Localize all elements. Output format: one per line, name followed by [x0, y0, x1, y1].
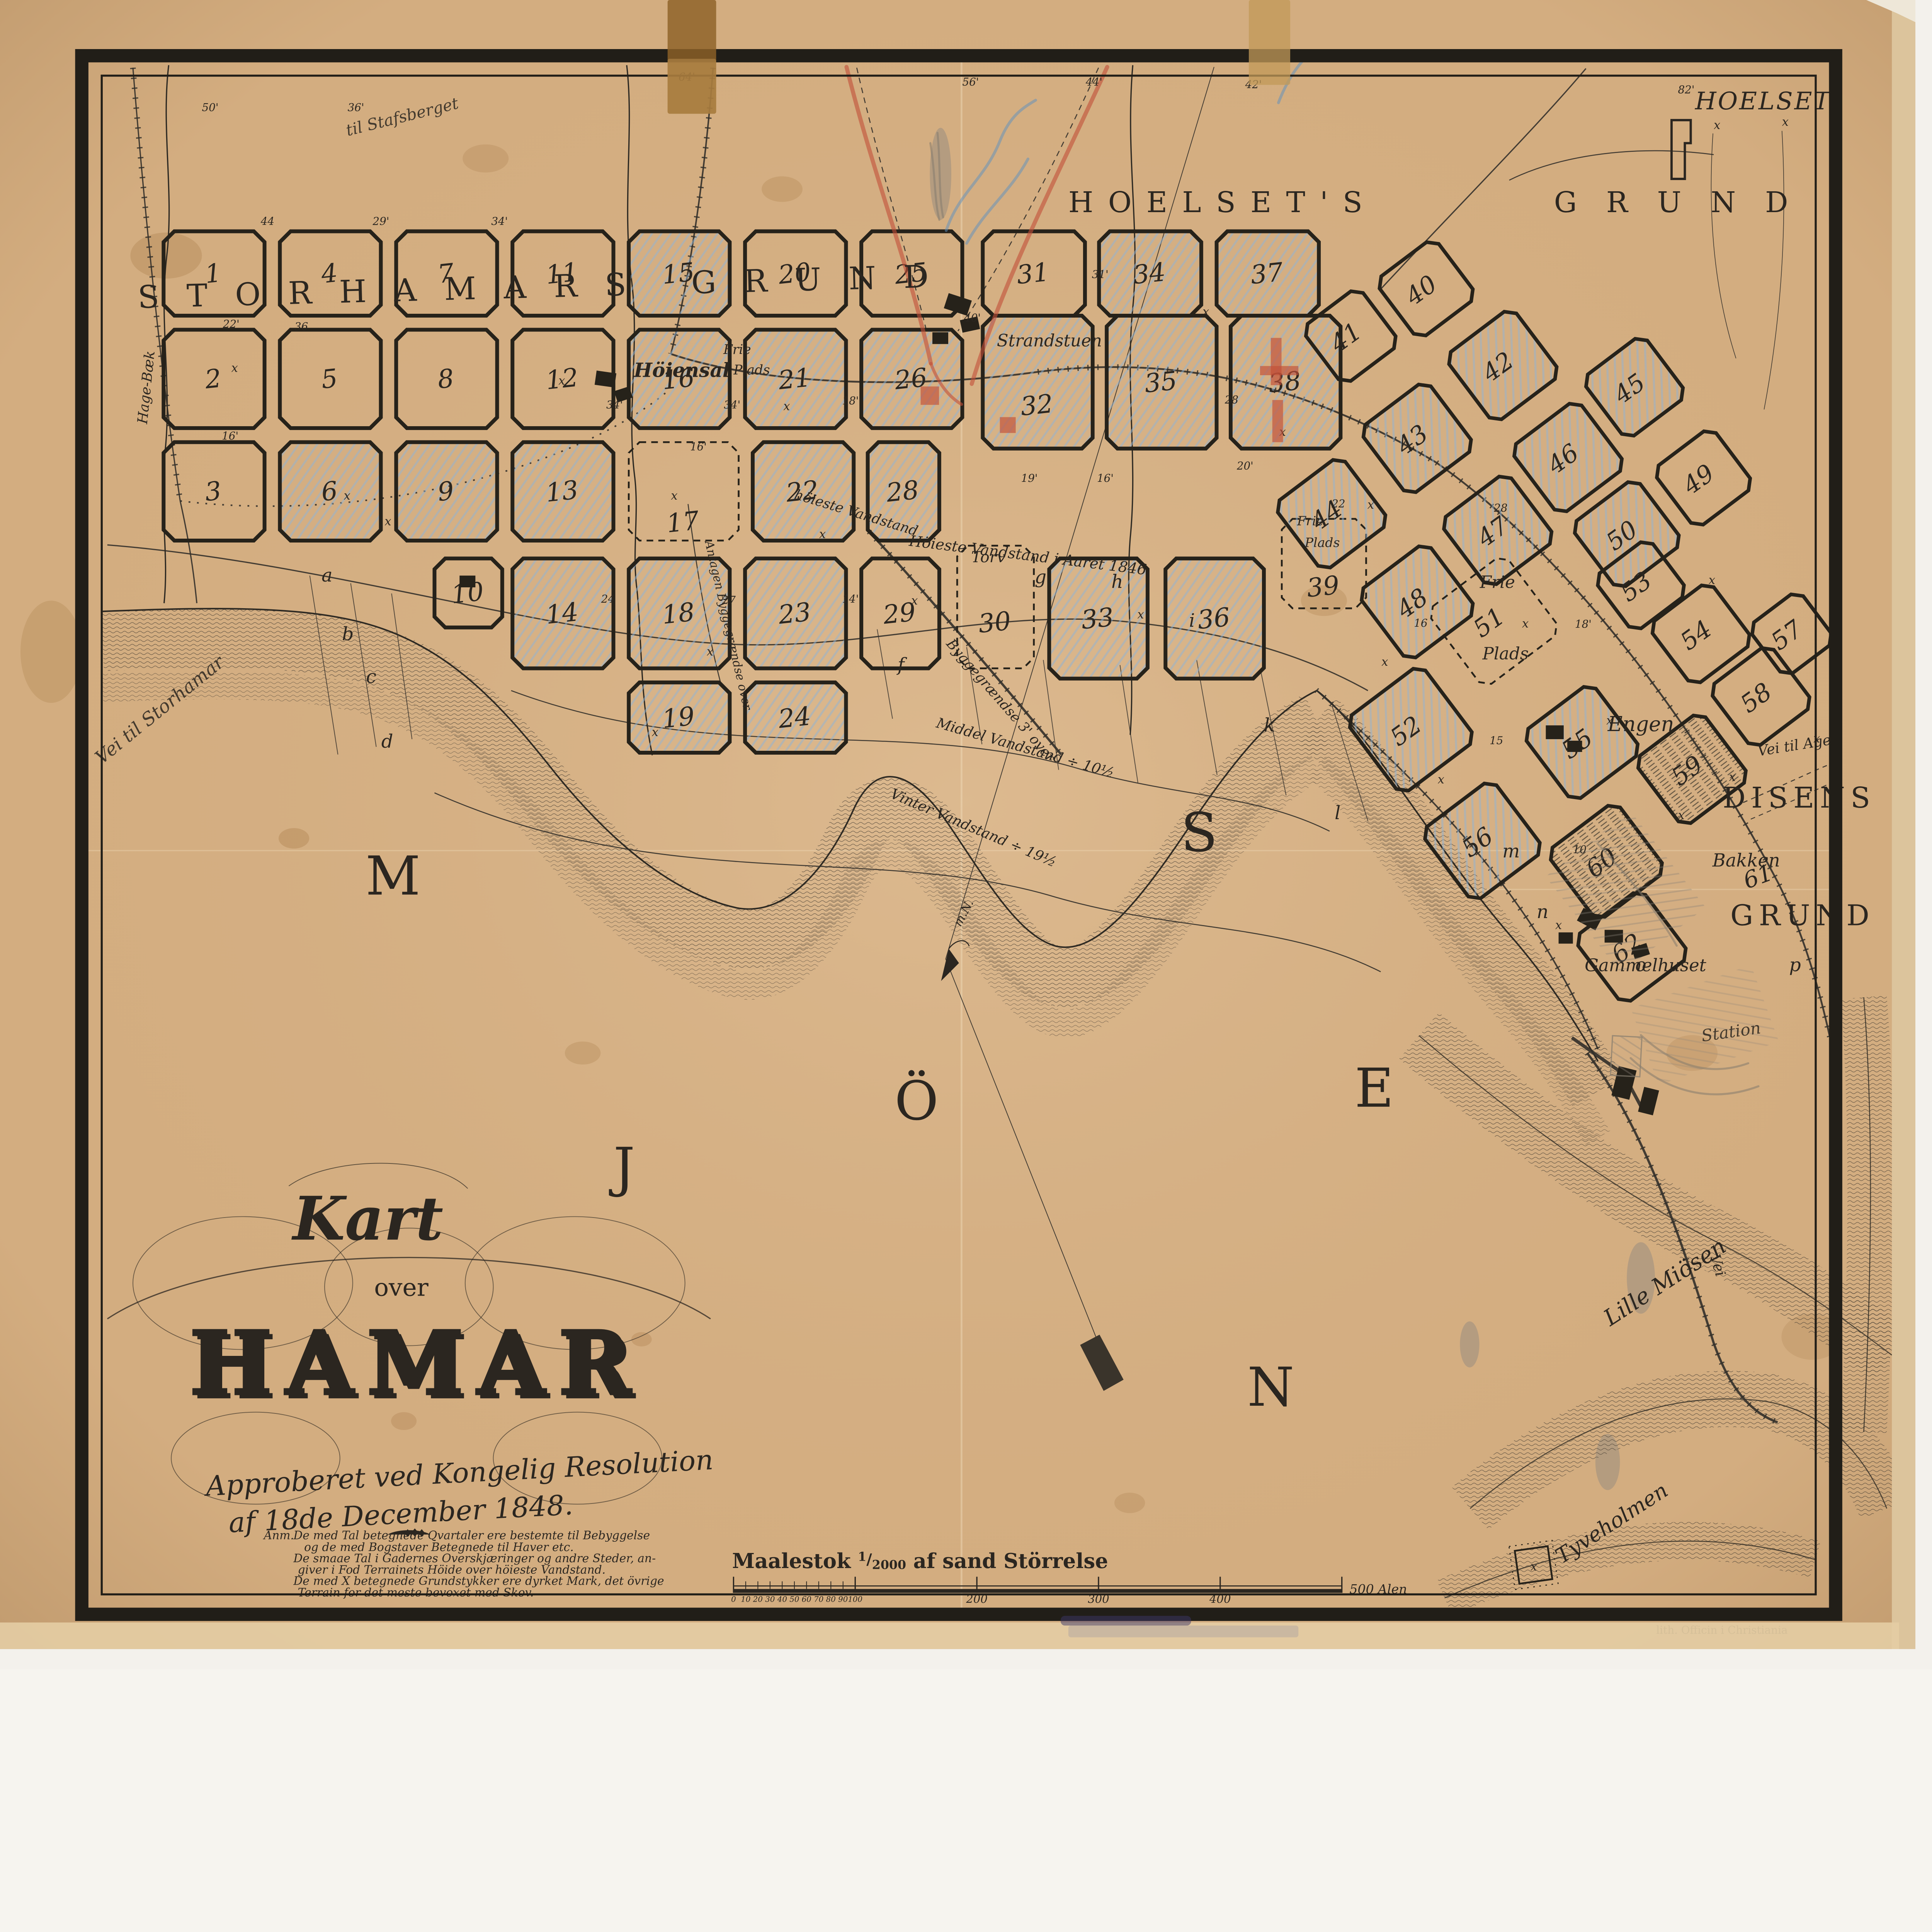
street-width-number: 27 — [722, 594, 736, 606]
place-label: Frie — [1480, 572, 1515, 592]
garden-plot-letter: i — [1189, 610, 1195, 631]
cultivated-field-x-icon: x — [1138, 608, 1144, 622]
cultivated-field-x-icon: x — [558, 374, 565, 388]
city-block: 6 — [280, 442, 381, 541]
block-number: 21 — [777, 362, 813, 395]
street-width-number: 50' — [202, 101, 219, 114]
scale-tick-label: 40 — [777, 1595, 787, 1604]
street-width-number: 16 — [1414, 617, 1427, 629]
block-number: 34 — [1131, 257, 1167, 290]
lake-name-letter: M — [366, 845, 420, 907]
block-number: 5 — [320, 363, 339, 395]
annotation-heading: Anm. — [263, 1529, 294, 1542]
building-footprint — [932, 332, 948, 344]
building-footprint — [1559, 932, 1573, 944]
street-width-number: 28 — [1225, 393, 1238, 406]
building-footprint — [1567, 741, 1582, 752]
street-width-number: 28 — [1493, 502, 1507, 514]
block-number: 13 — [544, 475, 580, 508]
paper-stain — [20, 600, 82, 703]
cultivated-field-x-icon: x — [819, 527, 826, 541]
block-number: 17 — [665, 505, 701, 538]
cultivated-field-x-icon: x — [1714, 119, 1720, 132]
street-width-number: 82' — [1678, 83, 1695, 96]
red-crayon-mark — [1260, 366, 1298, 375]
city-block: 26 — [861, 330, 962, 428]
street-width-number: 18' — [842, 394, 859, 407]
street-width-number: 24 — [601, 593, 615, 605]
block-number: 18 — [661, 597, 696, 630]
garden-plot-letter: g — [1035, 566, 1046, 588]
scale-tick-label: 90 — [838, 1595, 848, 1604]
block-number: 35 — [1143, 366, 1179, 398]
block-number: 39 — [1305, 570, 1341, 603]
street-width-number: 16' — [690, 440, 707, 453]
region-label: GRUND — [1730, 899, 1875, 932]
block-number: 3 — [204, 476, 223, 507]
street-width-number: 20' — [1236, 459, 1253, 472]
building-footprint — [1546, 725, 1564, 739]
place-label: Plads — [733, 362, 770, 378]
grey-smudge — [1460, 1321, 1479, 1367]
street-width-number: 16' — [1097, 472, 1114, 485]
cultivated-field-x-icon: x — [1438, 773, 1444, 786]
title-kart: Kart — [291, 1183, 444, 1254]
street-width-number: 56' — [962, 76, 979, 88]
city-block: 13 — [512, 442, 613, 541]
block-number: 28 — [884, 475, 920, 508]
scan-background-right — [1915, 0, 1932, 1669]
scale-tick-label: 20 — [753, 1595, 763, 1604]
region-label: HOELSET'S — [1068, 186, 1377, 219]
garden-plot-letter: k — [1264, 715, 1275, 736]
city-block: 9 — [396, 442, 497, 541]
cultivated-field-x-icon: x — [1522, 617, 1529, 631]
tape-piece — [1249, 0, 1290, 85]
paper-stain — [463, 145, 509, 173]
cultivated-field-x-icon: x — [1709, 573, 1715, 587]
city-block: 37 — [1217, 231, 1319, 316]
city-block: 34 — [1099, 231, 1201, 316]
city-block: 21 — [745, 330, 846, 428]
block-number: 2 — [203, 363, 223, 395]
scale-tick-label: 100 — [848, 1595, 862, 1604]
scale-tick-label: 80 — [826, 1595, 836, 1604]
place-label: Höiensal — [633, 359, 730, 382]
cultivated-field-x-icon: x — [344, 489, 350, 503]
block-number: 9 — [436, 476, 456, 507]
red-crayon-mark — [1271, 338, 1282, 385]
city-block: 23 — [745, 558, 846, 668]
garden-plot-letter: b — [342, 624, 354, 645]
cultivated-field-x-icon: x — [1381, 655, 1388, 669]
place-label: Bakken — [1712, 850, 1780, 871]
street-width-number: 15 — [1490, 734, 1503, 747]
lake-name-letter: Ö — [895, 1070, 939, 1132]
street-width-number: 40' — [964, 311, 981, 324]
hamar-1848-map: 1471115202531343725812162126323538369131… — [0, 0, 1932, 1669]
block-number: 33 — [1080, 602, 1115, 635]
street-width-number: 44' — [1085, 76, 1102, 88]
scale-tick-label: 30 — [765, 1595, 775, 1604]
cultivated-field-x-icon: x — [231, 361, 238, 375]
street-width-number: 44 — [260, 215, 274, 228]
place-label: Frie — [1297, 513, 1324, 528]
garden-plot-letter: o — [1635, 955, 1646, 976]
annotation-line: De med Tal betegnede Qvartaler ere beste… — [293, 1529, 650, 1542]
scale-tick-label: 50 — [789, 1595, 799, 1604]
cultivated-field-x-icon: x — [671, 489, 677, 503]
red-crayon-mark — [1272, 400, 1283, 442]
region-label: HOELSET — [1695, 87, 1832, 115]
paper-stain — [762, 176, 803, 202]
block-number: 36 — [1196, 602, 1231, 635]
garden-plot-letter: l — [1335, 803, 1340, 824]
scale-bar — [733, 1589, 1342, 1593]
lake-name-letter: S — [1181, 801, 1218, 864]
place-label: Frie — [723, 342, 751, 357]
garden-plot-letter: m — [1502, 841, 1520, 862]
scale-tick-label: 70 — [814, 1595, 823, 1604]
cultivated-field-x-icon: x — [1531, 1560, 1537, 1574]
block-number: 14 — [544, 597, 580, 630]
block-number: 31 — [1015, 257, 1051, 290]
building-footprint — [595, 371, 616, 388]
place-label: Engen — [1607, 713, 1674, 736]
ink-smudge — [1061, 1616, 1191, 1626]
place-label: Strandstuen — [997, 331, 1102, 350]
city-block: 35 — [1107, 316, 1216, 449]
garden-plot-letter: p — [1789, 955, 1801, 976]
garden-plot-letter: a — [321, 565, 332, 586]
cultivated-field-x-icon: x — [652, 726, 658, 739]
place-label: Plads — [1482, 644, 1529, 664]
region-label: GRUND — [1554, 186, 1818, 219]
street-width-number: 22' — [223, 318, 240, 330]
street-width-number: 29' — [372, 215, 389, 228]
city-block: 19 — [629, 682, 730, 753]
block-number: 24 — [777, 701, 813, 734]
block-number: 6 — [320, 476, 339, 507]
scale-title: Maalestok 1/2000 af sand Störrelse — [732, 1549, 1108, 1573]
paper-stain — [279, 828, 309, 849]
street-width-number: 14' — [842, 593, 859, 605]
garden-plot-letter: c — [366, 666, 376, 687]
scale-tick-label: 10 — [741, 1595, 750, 1604]
red-crayon-mark — [1000, 417, 1016, 433]
block-number: 19 — [661, 701, 696, 734]
annotation-line: Terrain for det meste bevoxet med Skov. — [298, 1586, 534, 1599]
cultivated-field-x-icon: x — [911, 594, 918, 607]
scale-tick-label: 60 — [802, 1595, 811, 1604]
street-width-number: 19' — [1021, 472, 1038, 485]
cultivated-field-x-icon: x — [1782, 115, 1789, 129]
street-width-number: 36 — [294, 320, 308, 333]
street-width-number: 34' — [491, 215, 508, 228]
street-width-number: 10 — [1573, 843, 1587, 856]
city-block: 36 — [1165, 558, 1264, 679]
garden-plot-letter: d — [381, 731, 393, 752]
city-block: 14 — [512, 558, 613, 668]
paper-stain — [565, 1041, 601, 1065]
paper-edge-right — [1892, 0, 1915, 1651]
scan-background-bottom — [0, 1649, 1932, 1669]
cultivated-field-x-icon: x — [1555, 918, 1562, 932]
block-number: 8 — [436, 363, 456, 395]
map-page: 1471115202531343725812162126323538369131… — [0, 0, 1932, 1669]
region-label: DISENS — [1723, 781, 1876, 815]
cultivated-field-x-icon: x — [783, 400, 790, 413]
street-width-number: 18' — [1575, 618, 1592, 631]
city-block: 24 — [745, 682, 846, 753]
cultivated-field-x-icon: x — [1202, 305, 1209, 319]
garden-plot-letter: h — [1111, 571, 1123, 592]
title-over: over — [374, 1274, 429, 1302]
street-width-number: 16' — [222, 430, 238, 442]
pencil-station-building — [1611, 1036, 1642, 1077]
faded-stamp — [1068, 1626, 1298, 1637]
cultivated-field-x-icon: x — [385, 515, 391, 528]
scale-tick-label: 0 — [731, 1595, 736, 1604]
street-width-number: 22 — [1331, 497, 1345, 510]
block-number: 32 — [1019, 389, 1054, 422]
street-width-number: 34' — [606, 398, 623, 411]
garden-plot-letter: n — [1537, 901, 1549, 923]
street-width-number: 31' — [1092, 268, 1109, 281]
lake-name-letter: N — [1247, 1356, 1294, 1418]
cultivated-field-x-icon: x — [707, 645, 713, 659]
block-number: 37 — [1249, 257, 1285, 290]
red-crayon-mark — [921, 386, 939, 405]
tape-piece — [668, 59, 716, 114]
cultivated-field-x-icon: x — [1678, 809, 1685, 822]
block-number: 30 — [977, 606, 1012, 639]
title-hamar: HAMAR — [189, 1311, 644, 1415]
street-width-number: 36' — [348, 101, 364, 114]
lake-name-letter: E — [1355, 1057, 1394, 1119]
cultivated-field-x-icon: x — [1367, 498, 1374, 512]
paper-edge-bottom — [0, 1622, 1899, 1649]
building-footprint — [459, 576, 475, 587]
block-number: 23 — [777, 597, 813, 630]
paper-stain — [1114, 1493, 1145, 1513]
street-width-number: 34' — [724, 398, 740, 411]
place-label: Plads — [1304, 535, 1340, 550]
